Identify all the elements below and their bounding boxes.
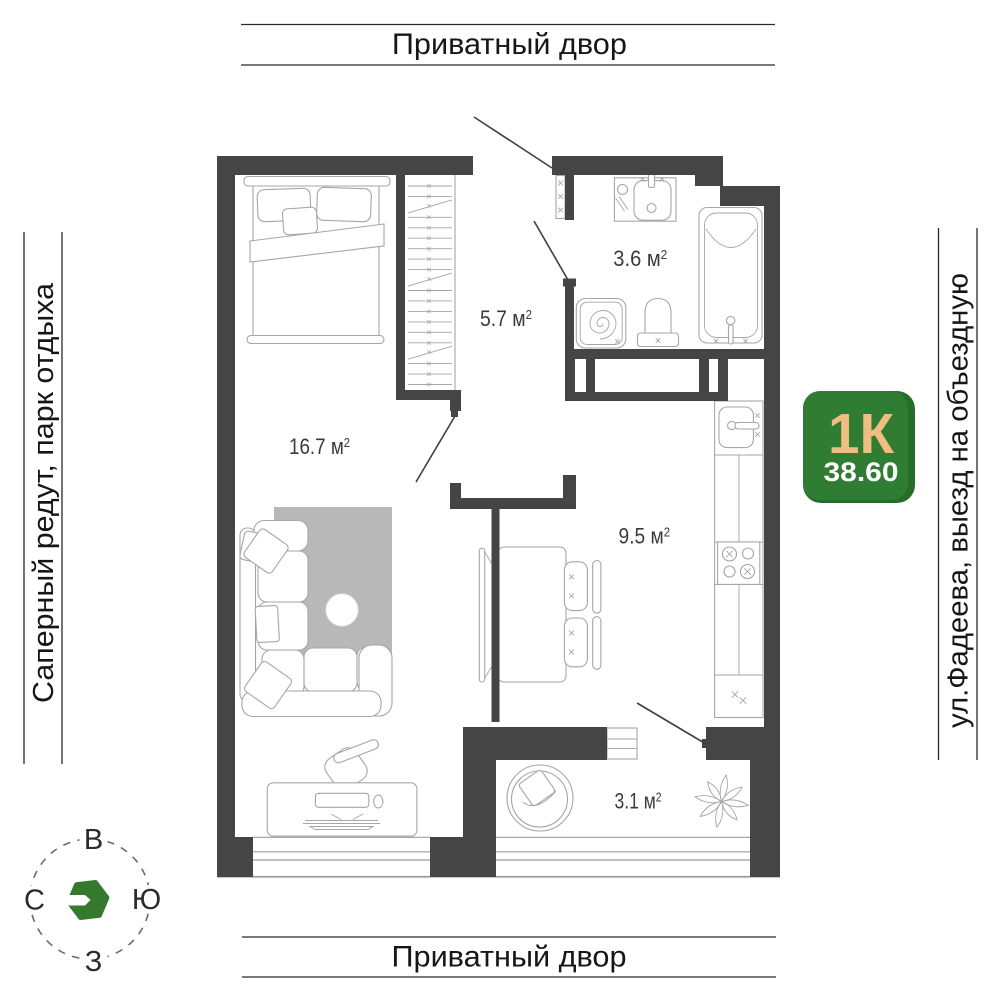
svg-text:Приватный двор: Приватный двор [392, 941, 627, 974]
svg-text:Приватный двор: Приватный двор [392, 28, 627, 61]
svg-text:3.6 м2: 3.6 м2 [613, 246, 667, 271]
svg-text:С: С [24, 885, 45, 917]
svg-text:3.1 м2: 3.1 м2 [615, 789, 662, 814]
svg-text:16.7 м2: 16.7 м2 [289, 434, 350, 459]
svg-text:ул.Фадеева, выезд на объездную: ул.Фадеева, выезд на объездную [943, 273, 975, 728]
svg-text:Саперный редут, парк отдыха: Саперный редут, парк отдыха [28, 282, 60, 703]
svg-text:38.60: 38.60 [824, 457, 899, 487]
svg-text:З: З [85, 946, 103, 978]
svg-text:В: В [84, 824, 103, 856]
svg-text:5.7 м2: 5.7 м2 [480, 306, 532, 331]
svg-text:Ю: Ю [132, 884, 161, 916]
svg-text:9.5 м2: 9.5 м2 [619, 524, 671, 549]
